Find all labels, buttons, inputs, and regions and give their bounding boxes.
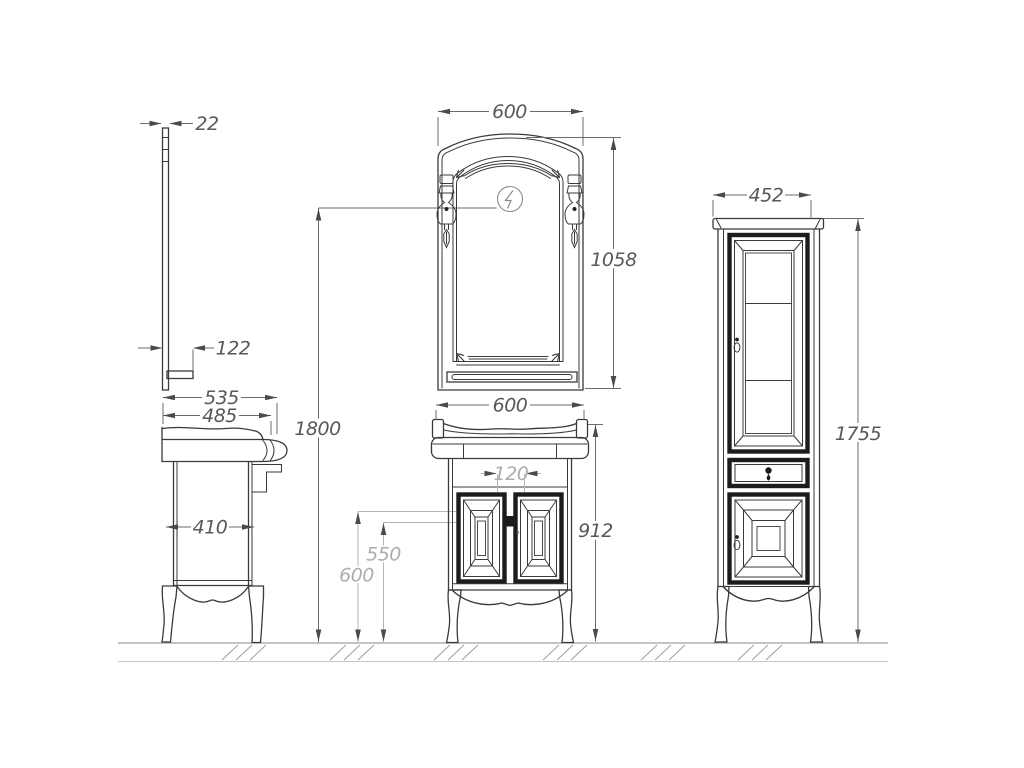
dim-vanity-height: 912: [577, 425, 615, 642]
drawing-page: 22 122 535 485: [0, 0, 1024, 768]
vanity-countertop: [432, 438, 589, 459]
cabinet-leg-right: [809, 587, 823, 643]
dim-vanity-body-depth: 410: [166, 517, 254, 539]
vanity-leg-right: [559, 590, 574, 643]
dim-label-vanity-counter-depth: 485: [202, 405, 237, 427]
dim-label-cabinet-width: 452: [749, 185, 784, 207]
vanity-apron-scallop: [453, 591, 568, 606]
dim-label-mirror-width: 600: [492, 101, 527, 123]
cabinet-leg-left: [715, 587, 729, 643]
dim-label-door-handle-gap: 120: [494, 463, 529, 485]
dim-cabinet-height: 1755: [823, 219, 883, 643]
counter-support-bracket: [252, 465, 282, 493]
vanity-side-countertop: [162, 428, 287, 462]
cabinet-top-board: [713, 219, 824, 230]
dim-label-mirror-shelf-depth: 122: [216, 338, 251, 360]
cabinet-glass-door: [730, 235, 808, 452]
dim-mirror-shelf-depth: 122: [138, 338, 250, 371]
ground-line: [118, 643, 888, 662]
dim-label-vanity-height: 912: [578, 520, 613, 542]
vanity-door-left: [459, 495, 505, 582]
side-back-leg: [249, 586, 264, 643]
cabinet-lower-door: [730, 495, 808, 583]
dim-mirror-height: 1058: [526, 138, 637, 389]
vanity-side-view: 535 485 410: [162, 387, 287, 643]
dim-label-light-center-height: 1800: [294, 418, 341, 440]
drawer-knob-icon: [765, 467, 771, 473]
dim-label-cabinet-height: 1755: [835, 423, 882, 445]
dim-vanity-width: 600: [436, 395, 584, 419]
cabinet-apron-scallop: [724, 587, 815, 601]
side-apron-scallop: [177, 587, 249, 603]
door-handle-icon: [506, 516, 515, 527]
mirror-side-view: 22 122: [138, 113, 250, 390]
dim-label-height-600: 600: [339, 565, 374, 587]
corner-flourish-icon: [457, 354, 465, 362]
hatch-marks: [222, 645, 782, 660]
side-front-leg: [162, 586, 177, 642]
light-point-icon: [498, 187, 523, 212]
dim-label-height-550: 550: [366, 544, 401, 566]
cabinet-drawer: [730, 460, 808, 486]
vanity-leg-left: [447, 590, 462, 643]
dim-label-mirror-height: 1058: [590, 249, 637, 271]
dim-mirror-thickness: 22: [140, 113, 219, 135]
dim-mirror-width: 600: [438, 101, 583, 146]
technical-drawing-canvas: 22 122 535 485: [0, 0, 1024, 768]
vanity-door-right: [516, 495, 562, 582]
vanity-front-view: 600 120: [432, 395, 615, 643]
cabinet-front-view: 452: [713, 185, 883, 643]
corner-flourish-icon: [552, 354, 560, 362]
mirror-shelf-profile: [167, 371, 193, 379]
dim-label-vanity-width: 600: [493, 395, 528, 417]
dim-label-vanity-body-depth: 410: [193, 517, 228, 539]
wall-lamp-right-icon: [565, 175, 584, 248]
mirror-front-view: 600: [437, 101, 637, 390]
dim-cabinet-width: 452: [713, 185, 811, 218]
dim-label-mirror-thickness: 22: [195, 113, 218, 135]
mirror-shelf: [447, 372, 577, 382]
